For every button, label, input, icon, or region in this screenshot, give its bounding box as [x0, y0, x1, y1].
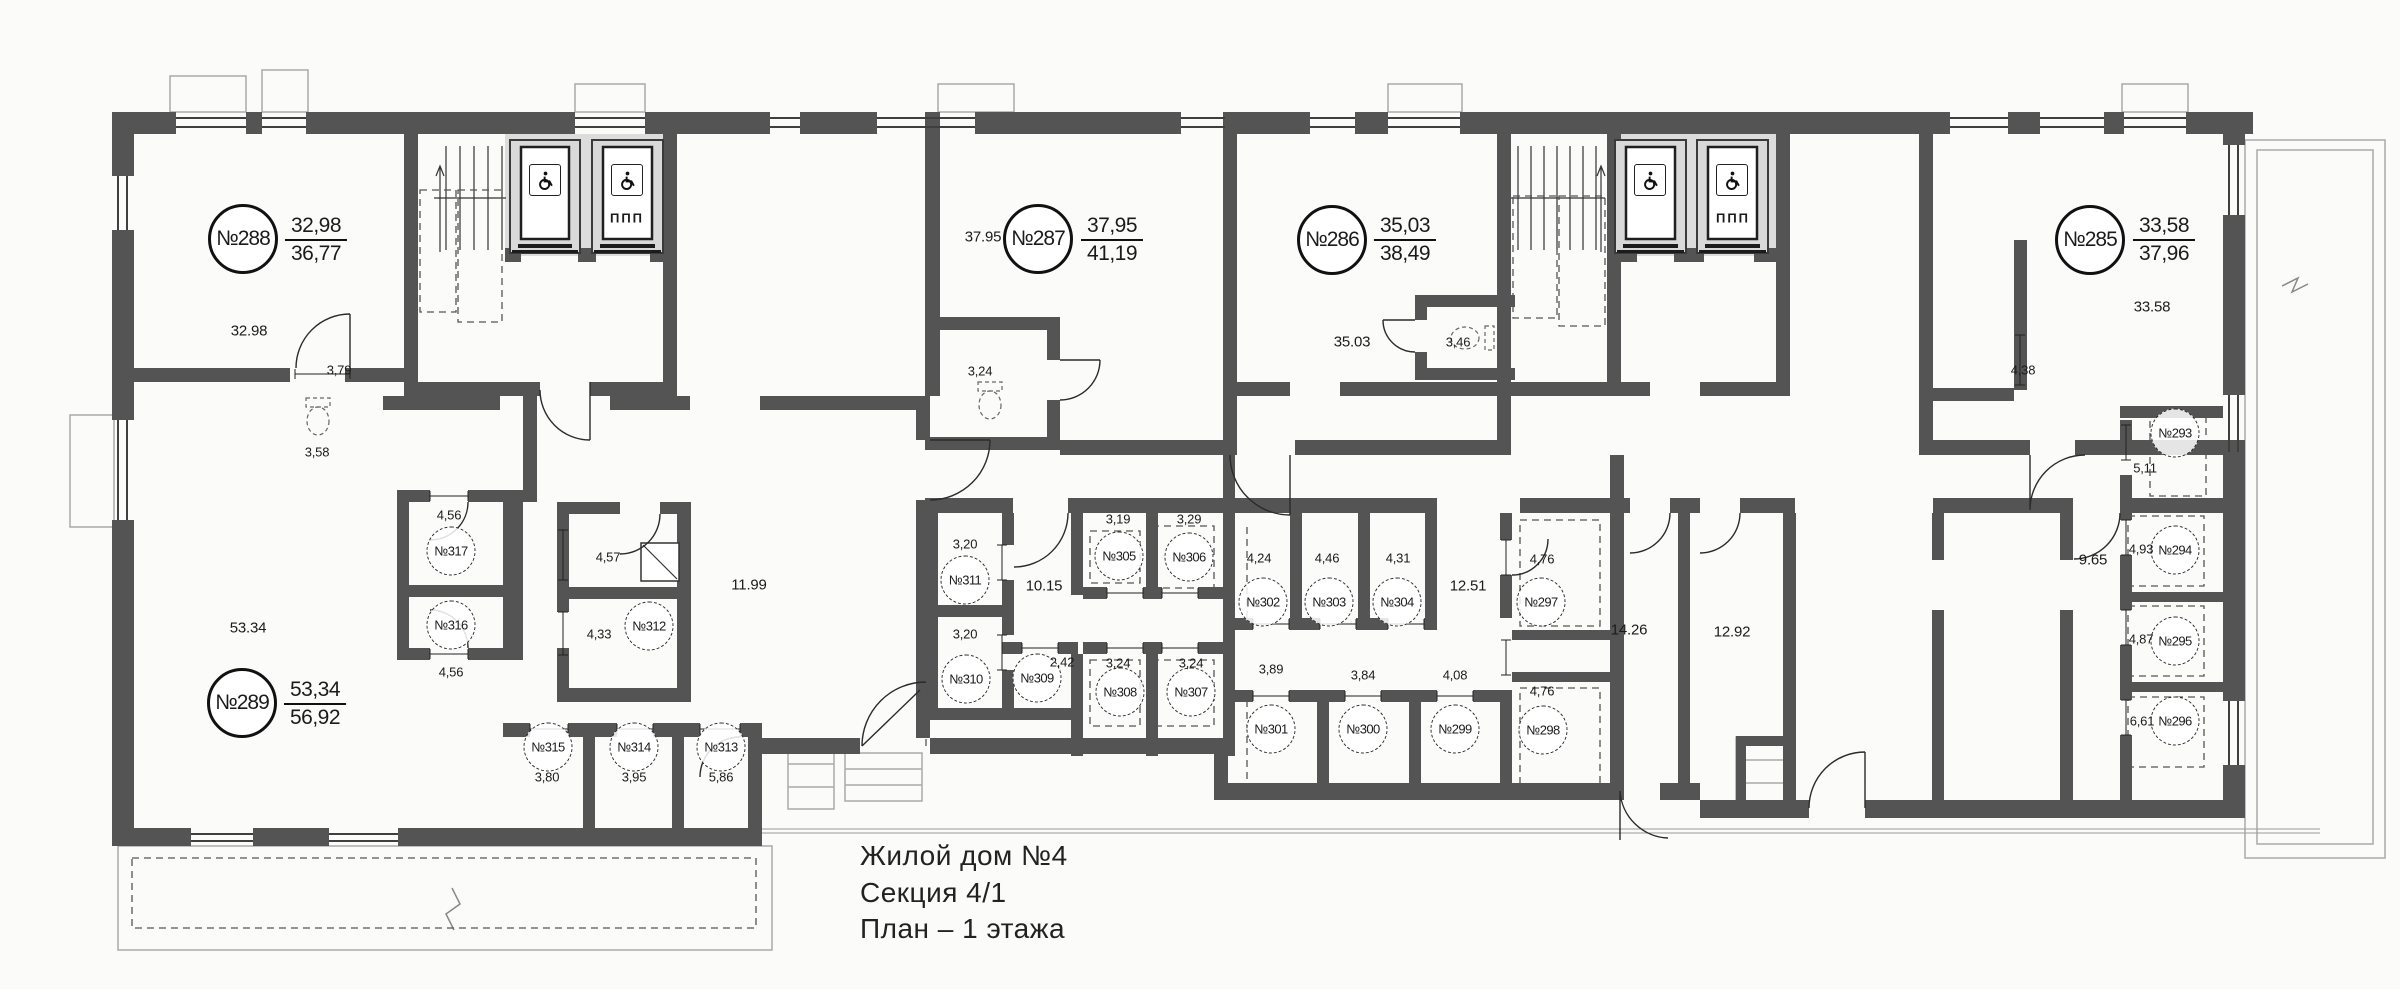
room-number-circle: №316: [427, 601, 476, 650]
area-dimension-label: 12.51: [1450, 578, 1487, 595]
elevator-ppp-label: ППП: [1716, 211, 1750, 226]
room-number-circle: №300: [1339, 705, 1388, 754]
apartment-area-fraction: 35,03 38,49: [1374, 214, 1436, 266]
apartment-area-bottom: 38,49: [1374, 241, 1436, 266]
room-number-circle: №301: [1247, 705, 1296, 754]
area-dimension-label: 4,76: [1530, 552, 1555, 567]
room-number-circle: №313: [697, 723, 746, 772]
apartment-number-circle: №285: [2055, 205, 2125, 275]
title-plan: План – 1 этажа: [860, 913, 1065, 945]
area-dimension-label: 3,58: [305, 445, 330, 460]
area-dimension-label: 3,84: [1351, 668, 1376, 683]
apartment-area-bottom: 56,92: [284, 705, 346, 730]
area-dimension-label: 3,24: [1179, 656, 1204, 671]
room-number-circle: №314: [610, 723, 659, 772]
area-dimension-label: 3,20: [953, 537, 978, 552]
apartment-area-top: 37,95: [1081, 214, 1143, 241]
shower-box: [641, 543, 679, 581]
area-dimension-label: 10.15: [1026, 578, 1063, 595]
area-dimension-label: 3,95: [622, 770, 647, 785]
area-dimension-label: 4,56: [437, 508, 462, 523]
apartment-number-circle: №289: [207, 668, 277, 738]
area-dimension-label: 4,93: [2129, 542, 2154, 557]
apartment-area-fraction: 53,34 56,92: [284, 678, 346, 730]
area-dimension-label: 4,57: [596, 550, 621, 565]
wheelchair-icon: [1716, 164, 1748, 196]
area-dimension-label: 6,61: [2130, 714, 2155, 729]
area-dimension-label: 32.98: [231, 323, 268, 340]
room-number-circle: №297: [1517, 578, 1566, 627]
elevator-ppp-label: ППП: [610, 211, 644, 226]
area-dimension-label: 53.34: [230, 620, 267, 637]
area-dimension-label: 3,89: [1259, 662, 1284, 677]
floor-plan: №288 32,98 36,77 №287 37,95 41,19 №286 3…: [0, 0, 2400, 989]
area-dimension-label: 4,46: [1315, 551, 1340, 566]
room-number-circle: №293: [2151, 409, 2200, 458]
area-dimension-label: 3,24: [968, 364, 993, 379]
room-number-circle: №307: [1167, 668, 1216, 717]
area-dimension-label: 37.95: [965, 229, 1002, 246]
room-number-circle: №302: [1239, 578, 1288, 627]
area-dimension-label: 33.58: [2134, 299, 2171, 316]
area-dimension-label: 9.65: [2079, 552, 2107, 569]
wheelchair-icon: [611, 164, 643, 196]
room-number-circle: №311: [941, 556, 990, 605]
area-dimension-label: 2,42: [1050, 655, 1075, 670]
area-dimension-label: 14.26: [1611, 622, 1648, 639]
wheelchair-icon: [1634, 164, 1666, 196]
area-dimension-label: 4,33: [587, 627, 612, 642]
room-number-circle: №315: [524, 723, 573, 772]
elevator-lobbies: [505, 134, 1790, 256]
area-dimension-label: 3,46: [1446, 335, 1471, 350]
room-number-circle: №303: [1305, 578, 1354, 627]
room-number-circle: №298: [1519, 706, 1568, 755]
room-number-circle: №312: [625, 602, 674, 651]
room-number-circle: №317: [427, 527, 476, 576]
dimension-ticks: [295, 335, 2131, 735]
room-number-circle: №296: [2151, 697, 2200, 746]
area-dimension-label: 3,24: [1106, 656, 1131, 671]
apartment-area-bottom: 36,77: [285, 241, 347, 266]
apartment-number-circle: №288: [208, 204, 278, 274]
area-dimension-label: 4,24: [1247, 551, 1272, 566]
apartment-area-fraction: 32,98 36,77: [285, 214, 347, 266]
area-dimension-label: 35.03: [1334, 334, 1371, 351]
floorplan-linework: [0, 0, 2400, 989]
area-dimension-label: 4,08: [1443, 668, 1468, 683]
area-dimension-label: 3,20: [953, 627, 978, 642]
area-dimension-label: 5,86: [709, 770, 734, 785]
apartment-area-top: 32,98: [285, 214, 347, 241]
apartment-number-circle: №287: [1003, 204, 1073, 274]
apartment-area-bottom: 41,19: [1081, 241, 1143, 266]
apartment-area-bottom: 37,96: [2133, 241, 2195, 266]
room-number-circle: №295: [2151, 617, 2200, 666]
area-dimension-label: 3,80: [535, 770, 560, 785]
area-dimension-label: 12.92: [1714, 624, 1751, 641]
room-number-circle: №306: [1165, 533, 1214, 582]
area-dimension-label: 4,87: [2129, 632, 2154, 647]
title-building: Жилой дом №4: [860, 840, 1068, 872]
area-dimension-label: 5,11: [2133, 461, 2157, 476]
room-number-circle: №308: [1096, 668, 1145, 717]
area-dimension-label: 3,79: [327, 363, 352, 378]
area-dimension-label: 11.99: [731, 577, 766, 594]
apartment-area-top: 53,34: [284, 678, 346, 705]
area-dimension-label: 4,31: [1386, 551, 1411, 566]
room-number-circle: №294: [2151, 526, 2200, 575]
apartment-number-circle: №286: [1297, 205, 1367, 275]
room-number-circle: №304: [1373, 578, 1422, 627]
area-dimension-label: 3,29: [1177, 512, 1202, 527]
room-number-circle: №299: [1431, 705, 1480, 754]
area-dimension-label: 4,56: [439, 665, 464, 680]
area-dimension-label: 3,19: [1106, 512, 1131, 527]
bathroom-fixtures: [306, 326, 1494, 435]
apartment-area-fraction: 33,58 37,96: [2133, 214, 2195, 266]
wheelchair-icon: [529, 164, 561, 196]
apartment-area-top: 33,58: [2133, 214, 2195, 241]
area-dimension-label: 4,38: [2011, 363, 2036, 378]
room-number-circle: №310: [942, 655, 991, 704]
apartment-area-fraction: 37,95 41,19: [1081, 214, 1143, 266]
room-number-circle: №305: [1095, 532, 1144, 581]
walls: [112, 112, 2253, 846]
door-swings: [296, 314, 2120, 840]
area-dimension-label: 4,76: [1530, 684, 1555, 699]
title-section: Секция 4/1: [860, 877, 1007, 909]
apartment-area-top: 35,03: [1374, 214, 1436, 241]
